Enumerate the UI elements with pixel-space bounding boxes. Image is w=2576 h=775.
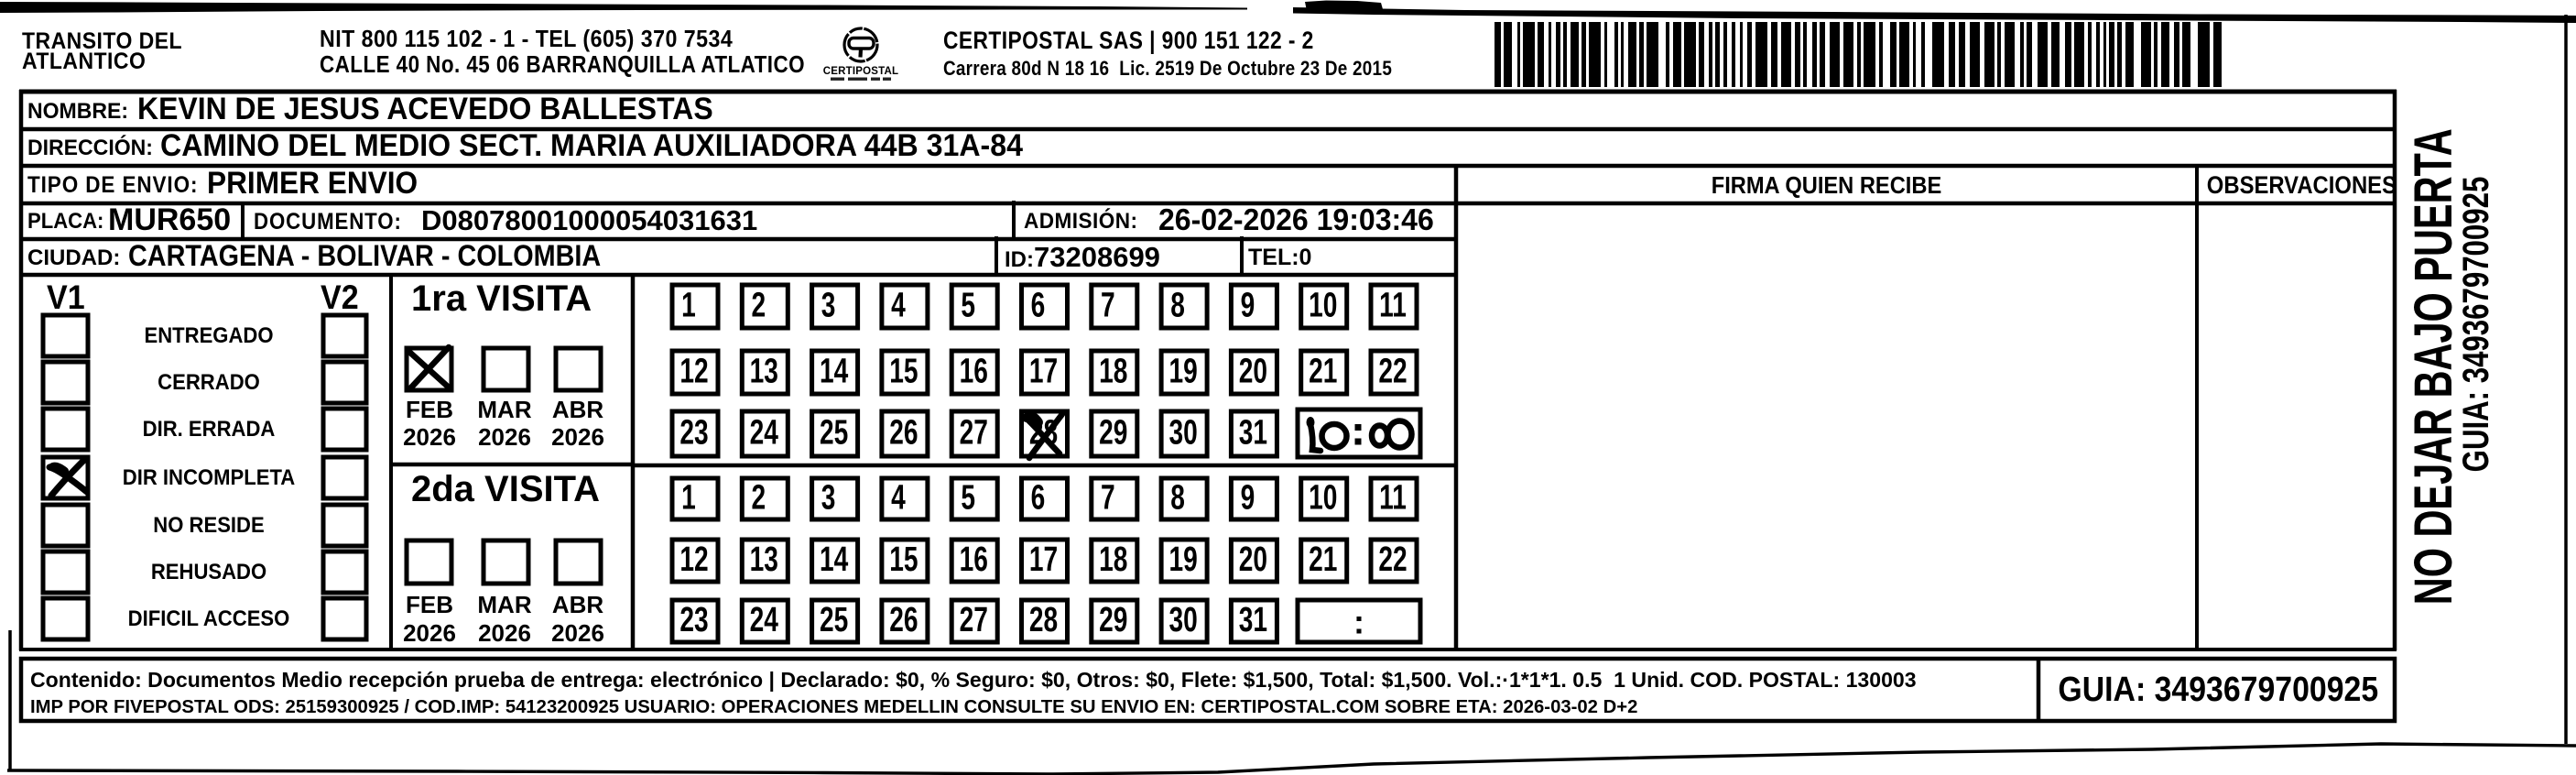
svg-text:4: 4 <box>891 286 906 324</box>
svg-text:14: 14 <box>820 540 849 579</box>
svg-text:15: 15 <box>889 352 918 390</box>
svg-text:27: 27 <box>960 413 988 452</box>
svg-text:23: 23 <box>679 601 708 639</box>
svg-text:29: 29 <box>1099 413 1127 452</box>
svg-text:15: 15 <box>889 540 918 579</box>
svg-text:21: 21 <box>1309 352 1337 390</box>
svg-text:11: 11 <box>1379 286 1407 324</box>
svg-text:23: 23 <box>679 413 708 452</box>
svg-text:24: 24 <box>750 601 779 639</box>
svg-text:13: 13 <box>750 352 778 390</box>
svg-text:2: 2 <box>751 478 766 517</box>
svg-text:1: 1 <box>681 478 696 517</box>
svg-text:8: 8 <box>1170 286 1185 324</box>
svg-text:26: 26 <box>889 601 918 639</box>
svg-text:2: 2 <box>751 286 766 324</box>
svg-text:14: 14 <box>820 352 849 390</box>
svg-text:18: 18 <box>1099 540 1127 579</box>
svg-text:31: 31 <box>1239 601 1267 639</box>
svg-text::: : <box>1353 604 1364 641</box>
svg-text:19: 19 <box>1168 540 1197 579</box>
svg-text:13: 13 <box>750 540 778 579</box>
svg-text:30: 30 <box>1168 601 1197 639</box>
svg-text:17: 17 <box>1029 540 1058 579</box>
svg-text:17: 17 <box>1029 352 1058 390</box>
svg-text:20: 20 <box>1239 352 1267 390</box>
svg-text:CERTIPOSTAL: CERTIPOSTAL <box>823 66 899 77</box>
svg-text:27: 27 <box>960 601 988 639</box>
svg-text:16: 16 <box>960 540 988 579</box>
svg-text:3: 3 <box>821 286 836 324</box>
svg-text:12: 12 <box>679 352 708 390</box>
svg-text:12: 12 <box>679 540 708 579</box>
svg-text:9: 9 <box>1241 286 1255 324</box>
svg-text:29: 29 <box>1099 601 1127 639</box>
svg-text:1: 1 <box>681 286 696 324</box>
svg-text:6: 6 <box>1031 286 1046 324</box>
svg-text:7: 7 <box>1101 478 1115 517</box>
svg-text:24: 24 <box>750 413 779 452</box>
svg-text:25: 25 <box>820 413 848 452</box>
svg-text:9: 9 <box>1241 478 1255 517</box>
svg-text:18: 18 <box>1099 352 1127 390</box>
svg-text:28: 28 <box>1029 601 1058 639</box>
svg-text:10: 10 <box>1309 286 1337 324</box>
svg-text:30: 30 <box>1168 413 1197 452</box>
svg-text:25: 25 <box>820 601 848 639</box>
svg-text:8: 8 <box>1170 478 1185 517</box>
svg-text:16: 16 <box>960 352 988 390</box>
svg-text:5: 5 <box>961 478 975 517</box>
svg-text:10: 10 <box>1309 478 1337 517</box>
svg-text:20: 20 <box>1239 540 1267 579</box>
svg-text:26: 26 <box>889 413 918 452</box>
svg-text:19: 19 <box>1168 352 1197 390</box>
svg-text:3: 3 <box>821 478 836 517</box>
svg-text:22: 22 <box>1378 352 1407 390</box>
svg-text:31: 31 <box>1239 413 1267 452</box>
svg-text:5: 5 <box>961 286 975 324</box>
svg-text:4: 4 <box>891 478 906 517</box>
svg-text:21: 21 <box>1309 540 1337 579</box>
svg-text:7: 7 <box>1101 286 1115 324</box>
svg-text:22: 22 <box>1378 540 1407 579</box>
svg-text:6: 6 <box>1031 478 1046 517</box>
svg-text:11: 11 <box>1379 478 1407 517</box>
